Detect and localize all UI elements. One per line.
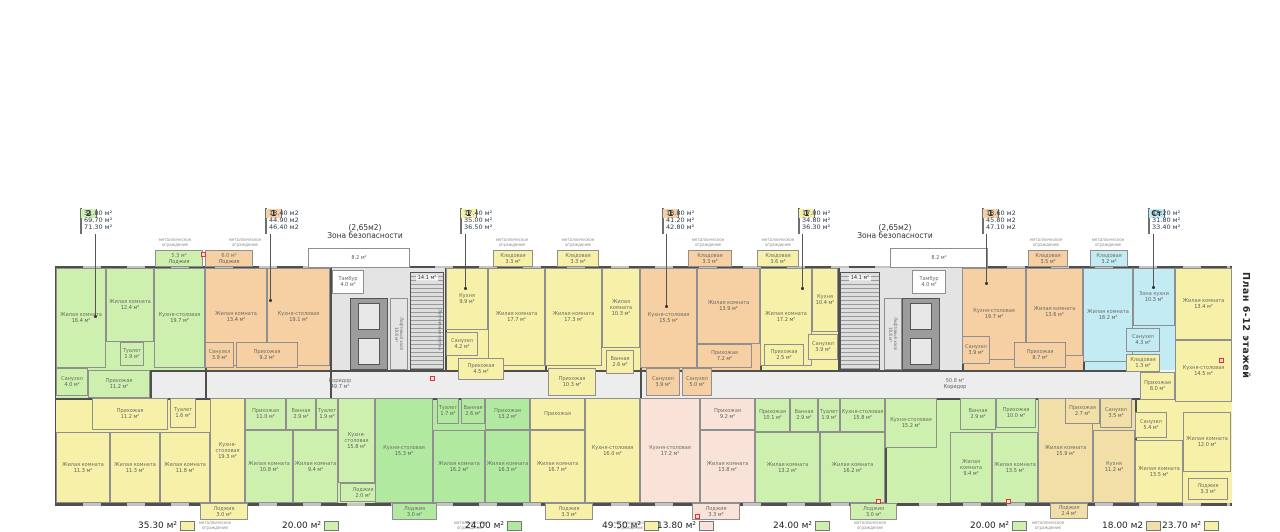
room: Жилая комната16.3 м²: [485, 430, 530, 503]
room: Лифтовый холл10.6 м²: [884, 298, 902, 370]
room: Санузел3.9 м²: [646, 368, 680, 396]
legend-connector-line: [270, 234, 271, 300]
room: Жилая комната13.8 м²: [700, 430, 755, 503]
floor-plan: 5.3 м²Лоджия6.0 м²ЛоджияКладовая3.3 м²Кл…: [0, 0, 1280, 532]
room-area: 17.3 м²: [564, 317, 583, 323]
room: Кладовая1.3 м²: [1126, 354, 1160, 372]
metal-fence-label: металлическоеограждение: [1030, 238, 1062, 247]
room-area: 4.0 м²: [921, 282, 936, 288]
room-area: 18.2 м²: [1099, 315, 1118, 321]
area-swatch: [815, 521, 830, 531]
room-area: 8.2 м²: [931, 255, 946, 261]
room-area: 8.0 м²: [1150, 386, 1165, 392]
legend-box: Ст18.20 м²31.80 м²33.40 м²: [1148, 208, 1150, 234]
room: Кладовая3.3 м²: [493, 250, 533, 267]
room-area: 3.0 м²: [216, 512, 231, 518]
legend-values: 18.20 м²31.80 м²33.40 м²: [1149, 209, 1183, 232]
bottom-area-value: 23.70 м²: [1162, 521, 1201, 531]
room: Жилая комната16.7 м²: [530, 430, 585, 503]
bottom-area-value: 18.00 м2: [1102, 521, 1143, 531]
room: Ванная2.6 м²: [461, 398, 485, 424]
room-area: 14.5 м²: [1194, 371, 1213, 377]
room-area: 17.7 м²: [507, 317, 526, 323]
room-area: 49.7 м²: [331, 384, 350, 390]
metal-fence-line: ограждение: [765, 242, 791, 247]
legend-box: 117.40 м²35.00 м²36.50 м²: [460, 208, 462, 234]
red-marker: [1219, 358, 1224, 363]
room-area: 16.7 м²: [548, 467, 567, 473]
room: Ванная2.6 м²: [606, 350, 634, 374]
red-marker: [430, 376, 435, 381]
room: Прихожая2.7 м²: [1065, 398, 1100, 424]
room: Лоджия3.0 м²: [850, 503, 897, 520]
legend-area: 42.80 м²: [666, 224, 694, 231]
room: Жилая комната16.2 м²: [433, 430, 485, 503]
room-area: 3.2 м²: [1101, 259, 1116, 265]
room: Жилая комната10.8 м²: [245, 430, 293, 503]
room: Санузел3.9 м²: [205, 342, 234, 368]
room: Лоджия3.3 м²: [545, 503, 593, 520]
room-area: 13.6 м²: [1045, 312, 1064, 318]
safety-zone-label: (2,65м2)Зона безопасности: [327, 224, 403, 240]
legend-box: 113.40 м244.90 м246.40 м2: [265, 208, 267, 234]
room-area: 19.7 м²: [985, 314, 1004, 320]
room-area: Лоджия: [218, 259, 239, 265]
room: Кладовая3.3 м²: [557, 250, 599, 267]
elevator-car: [358, 338, 380, 365]
room: Ванная2.9 м²: [286, 398, 316, 430]
room-name: Кухня-столовая: [211, 442, 244, 454]
room-area: 2.9 м²: [796, 415, 811, 421]
room: Жилая комната13.9 м²: [697, 268, 760, 344]
room-name: Жилая комната: [951, 459, 991, 471]
legend-values: 31.80 м²69.70 м²71.30 м²: [81, 209, 115, 232]
room: 5.3 м²Лоджия: [155, 250, 203, 267]
room: Жилая комната12.0 м²: [1183, 412, 1231, 472]
room: Прихожая2.5 м²: [764, 344, 804, 366]
room: Туалет1.9 м²: [818, 398, 840, 432]
room-area: 10.8 м²: [260, 467, 279, 473]
room: Жилая комната11.8 м²: [160, 432, 210, 503]
room: Ванная2.9 м²: [960, 398, 996, 430]
bottom-area-label: 20.00 м²: [282, 521, 339, 531]
legend-area: 36.50 м²: [464, 224, 492, 231]
room-area: 1.9 м²: [821, 415, 836, 421]
wall: [150, 370, 1140, 372]
room-area: 11.8 м²: [176, 468, 195, 474]
room-area: 11.2 м²: [1105, 467, 1124, 473]
metal-fence-label: металлическоеограждение: [762, 238, 794, 247]
metal-fence-line: ограждение: [232, 242, 258, 247]
room-area: 3.3 м²: [561, 512, 576, 518]
legend-values: 13.80 м²41.20 м²42.80 м²: [663, 209, 697, 232]
red-marker: [876, 499, 881, 504]
room: Коридор49.7 м²: [300, 372, 380, 396]
bottom-area-value: 24.00 м²: [465, 521, 504, 531]
legend-connector-line: [1153, 234, 1154, 287]
area-swatch: [1146, 521, 1161, 531]
metal-fence-label: металлическоеограждение: [199, 521, 231, 530]
room-area: 15.8 м²: [853, 415, 872, 421]
legend-area: 71.30 м²: [84, 224, 112, 231]
room: 8.2 м²: [308, 248, 410, 268]
room: Кухня-столовая15.8 м²: [840, 398, 885, 432]
bottom-area-value: 20.00 м²: [970, 521, 1009, 531]
room: Кладовая3.6 м²: [757, 250, 799, 267]
room: Жилая комната13.5 м²: [1135, 440, 1183, 503]
room-area: 9.4 м²: [963, 471, 978, 477]
room: Жилая комната17.7 м²: [488, 268, 545, 366]
room: Кухня10.4 м²: [812, 268, 838, 332]
room-area: 4.5 м²: [473, 369, 488, 375]
room: Ванная2.9 м²: [790, 398, 818, 432]
room: Кухня9.9 м²: [446, 268, 488, 330]
room-area: 2.6 м²: [612, 362, 627, 368]
elevator-car: [358, 303, 380, 330]
legend-box: 113.80 м²41.20 м²42.80 м²: [662, 208, 664, 234]
room: Прихожая: [530, 398, 585, 430]
room-area: 13.8 м²: [718, 467, 737, 473]
room-area: 4.0 м²: [64, 382, 79, 388]
room-area: 17.2 м²: [777, 317, 796, 323]
room-area: 8.2 м²: [351, 255, 366, 261]
room: Лоджия3.0 м²: [200, 503, 248, 520]
room-area: 3.9 м²: [212, 355, 227, 361]
room: Кухня-столовая15.8 м²: [338, 398, 375, 483]
bottom-area-label: 23.70 м²: [1162, 521, 1219, 531]
room: Прихожая10.1 м²: [755, 398, 790, 432]
elevator-shaft: [902, 298, 940, 370]
room-area: 3.0 м²: [407, 512, 422, 518]
area-swatch: [1204, 521, 1219, 531]
room: Санузел5.0 м²: [682, 368, 712, 396]
room-area: 3.3 м²: [1200, 489, 1215, 495]
room-area: 3.3 м²: [708, 512, 723, 518]
legend-connector-line: [666, 234, 667, 306]
room-area: 16.3 м²: [498, 467, 517, 473]
room: Жилая комната16.4 м²: [56, 268, 106, 368]
bottom-area-value: 35.30 м²: [138, 521, 177, 531]
room: Прихожая10.3 м²: [548, 368, 596, 396]
legend-values: 17.40 м²35.00 м²36.50 м²: [461, 209, 495, 232]
room: Кухня-столовая17.2 м²: [640, 398, 700, 503]
legend-area: 33.40 м²: [1152, 224, 1180, 231]
area-swatch: [324, 521, 339, 531]
metal-fence-line: ограждение: [499, 242, 525, 247]
room-area: Лоджия: [168, 259, 189, 265]
room-area: 10.0 м²: [1007, 413, 1026, 419]
bottom-area-value: 24.00 м²: [773, 521, 812, 531]
room-area: 14.1 м²: [849, 275, 872, 281]
room: Кухня-столовая19.7 м²: [154, 268, 205, 368]
apartment-zone: [150, 370, 1140, 398]
red-marker: [695, 514, 700, 519]
room-area: 3.5 м²: [1108, 413, 1123, 419]
elevator-car: [910, 338, 932, 365]
metal-fence-label: металлическоеограждение: [562, 238, 594, 247]
room-area: 13.4 м²: [1194, 304, 1213, 310]
room-area: 12.0 м²: [1198, 442, 1217, 448]
room-area: 15.5 м²: [659, 318, 678, 324]
room: 6.0 м²Лоджия: [205, 250, 253, 267]
room-area: 3.0 м²: [866, 512, 881, 518]
room-area: 10.3 м²: [563, 382, 582, 388]
room-area: 2.6 м²: [465, 411, 480, 417]
floor-plan-canvas: 5.3 м²Лоджия6.0 м²ЛоджияКладовая3.3 м²Кл…: [0, 0, 1280, 532]
bottom-area-label: 18.00 м2: [1102, 521, 1161, 531]
room-area: 16.2 м²: [843, 468, 862, 474]
room-area: 13.4 м²: [227, 317, 246, 323]
room-area: Коридор: [944, 384, 967, 390]
room: Кухня-столовая15.2 м²: [885, 398, 937, 448]
legend-box: 117.00 м²34.80 м²36.30 м²: [798, 208, 800, 234]
room-area: 13.2 м²: [498, 414, 517, 420]
room: Кухня11.2 м²: [1093, 430, 1135, 503]
metal-fence-label: металлическоеограждение: [1032, 521, 1064, 530]
room: Санузел4.3 м²: [1126, 328, 1160, 352]
room: Кухня-столовая14.5 м²: [1175, 340, 1232, 402]
room-area: 1.9 м²: [319, 414, 334, 420]
room-name: Прихожая: [544, 411, 571, 417]
room-area: 2.5 м²: [776, 355, 791, 361]
room: Жилая комната13.4 м²: [1175, 268, 1232, 340]
room: Жилая комната9.4 м²: [293, 430, 338, 503]
room-area: 11.3 м²: [74, 468, 93, 474]
room: Жилая комната16.2 м²: [820, 432, 885, 503]
room-area: 9.4 м²: [308, 467, 323, 473]
metal-fence-line: ограждение: [1095, 242, 1121, 247]
room: Жилая комната10.3 м²: [602, 268, 640, 348]
room-name: Лестничная клетка: [438, 309, 443, 350]
safety-zone-text: Зона безопасности: [857, 231, 933, 240]
bottom-area-value: 13.80 м²: [657, 521, 696, 531]
legend-area: 47.10 м2: [986, 224, 1016, 231]
room-area: 3.6 м²: [770, 259, 785, 265]
red-marker: [201, 252, 206, 257]
area-swatch: [180, 521, 195, 531]
room: Прихожая11.0 м²: [245, 398, 286, 430]
safety-zone-label: (2,65м2)Зона безопасности: [857, 224, 933, 240]
bottom-area-value: 20.00 м²: [282, 521, 321, 531]
room: Кухня-столовая16.0 м²: [585, 398, 640, 503]
room-area: 11.2 м²: [121, 414, 140, 420]
room: 8.2 м²: [890, 248, 988, 268]
room-area: 2.9 м²: [293, 414, 308, 420]
room-area: 3.3 м²: [702, 259, 717, 265]
room-area: 16.2 м²: [450, 467, 469, 473]
room: Санузел4.0 м²: [56, 368, 88, 396]
stairwell: 14.1 м²: [840, 272, 880, 370]
room-area: 10.1 м²: [763, 415, 782, 421]
room: Туалет1.9 м²: [120, 342, 144, 366]
room: Лифтовый холл10.6 м²: [390, 298, 408, 370]
room-area: 2.0 м²: [355, 493, 370, 499]
room: Прихожая7.2 м²: [697, 344, 752, 368]
room: Прихожая9.2 м²: [700, 398, 755, 430]
room: Прихожая8.0 м²: [1140, 372, 1175, 400]
elevator-car: [910, 303, 932, 330]
room: Прихожая8.7 м²: [1014, 342, 1066, 368]
room-area: 11.3 м²: [126, 468, 145, 474]
room: Прихожая9.2 м²: [236, 342, 298, 368]
room-area: 19.1 м²: [289, 317, 308, 323]
room-area: 1.9 м²: [124, 354, 139, 360]
bottom-area-label: 49.50 м²: [602, 521, 659, 531]
metal-fence-line: ограждение: [695, 242, 721, 247]
room-area: 2.4 м²: [1061, 511, 1076, 517]
metal-fence-label: металлическоеограждение: [1092, 238, 1124, 247]
room: Санузел5.4 м²: [1135, 412, 1167, 438]
room: Тамбур4.0 м²: [332, 270, 364, 294]
room: Кухня-столовая19.3 м²: [210, 398, 245, 503]
room-area: 9.2 м²: [259, 355, 274, 361]
legend-values: 13.40 м244.90 м246.40 м2: [266, 209, 302, 232]
room-area: 17.2 м²: [661, 451, 680, 457]
bottom-area-label: 24.00 м²: [465, 521, 522, 531]
room: Санузел3.9 м²: [808, 334, 838, 360]
room: Санузел4.2 м²: [446, 332, 478, 356]
room-area: 5.0 м²: [689, 382, 704, 388]
room-area: 10.3 м²: [1145, 297, 1164, 303]
room-area: 13.5 м²: [1006, 468, 1025, 474]
room-area: 15.8 м²: [347, 444, 366, 450]
room-area: 13.9 м²: [719, 306, 738, 312]
legend-connector-line: [986, 234, 987, 283]
room: Прихожая10.0 м²: [996, 398, 1036, 428]
room: Жилая комната12.4 м²: [106, 268, 154, 342]
room: Санузел3.5 м²: [1100, 398, 1132, 428]
room: Лоджия2.4 м²: [1050, 503, 1088, 519]
room: Туалет1.9 м²: [316, 398, 338, 430]
room-area: 10.4 м²: [816, 300, 835, 306]
plan-title: План 6-12 этажей: [1240, 272, 1251, 432]
room-area: 1.7 м²: [440, 411, 455, 417]
room-area: 9.9 м²: [459, 299, 474, 305]
wall: [150, 370, 152, 398]
room-area: 19.7 м²: [170, 318, 189, 324]
safety-zone-text: Зона безопасности: [327, 231, 403, 240]
room: Санузел3.9 м²: [962, 336, 990, 364]
room-area: 4.0 м²: [340, 282, 355, 288]
room: Туалет1.7 м²: [437, 398, 459, 424]
elevator-shaft: [350, 298, 388, 370]
bottom-area-label: 20.00 м²: [970, 521, 1027, 531]
legend-values: 17.00 м²34.80 м²36.30 м²: [799, 209, 833, 232]
legend-area: 46.40 м2: [269, 224, 299, 231]
room: Зона кухни10.3 м²: [1133, 268, 1175, 326]
room-area: 3.5 м²: [1040, 259, 1055, 265]
legend-box: 231.80 м²69.70 м²71.30 м²: [80, 208, 82, 234]
metal-fence-line: ограждение: [857, 525, 883, 530]
room-area: 7.2 м²: [717, 356, 732, 362]
room-area: 9.2 м²: [720, 414, 735, 420]
room-name: Кухня-столовая: [339, 432, 374, 444]
room: Жилая комната11.3 м²: [56, 432, 110, 503]
room: Прихожая11.2 м²: [92, 398, 168, 430]
room-area: 16.0 м²: [603, 451, 622, 457]
room-name: Лифтовый холл: [893, 317, 898, 350]
room: Кладовая3.3 м²: [688, 250, 732, 267]
room: Лоджия3.3 м²: [1188, 478, 1228, 500]
room-area: 13.2 м²: [778, 468, 797, 474]
room: Жилая комната13.5 м²: [992, 432, 1038, 503]
room: Кухня-столовая15.5 м²: [640, 268, 697, 368]
room-area: 16.4 м²: [72, 318, 91, 324]
bottom-area-label: 13.80 м²: [657, 521, 714, 531]
metal-fence-label: металлическоеограждение: [692, 238, 724, 247]
room-area: 2.9 м²: [970, 414, 985, 420]
legend-connector-line: [95, 234, 96, 316]
room: Туалет1.6 м²: [170, 398, 196, 428]
room-area: 10.3 м²: [612, 311, 631, 317]
metal-fence-line: ограждение: [202, 525, 228, 530]
room-area: 11.2 м²: [110, 384, 129, 390]
room-area: 3.9 м²: [815, 347, 830, 353]
room-area: 4.3 м²: [1135, 340, 1150, 346]
room-area: 14.1 м²: [416, 275, 439, 281]
room-area: 4.2 м²: [454, 344, 469, 350]
room-area: 3.9 м²: [968, 350, 983, 356]
room-name: Лифтовый холл: [399, 317, 404, 350]
metal-fence-label: металлическоеограждение: [854, 521, 886, 530]
room: Кухня-столовая15.3 м²: [375, 398, 433, 503]
room: Лестничная клетка: [436, 298, 444, 360]
room-area: 8.7 м²: [1032, 355, 1047, 361]
room: 50.8 м²Коридор: [920, 372, 990, 396]
area-swatch: [699, 521, 714, 531]
room-area: 5.4 м²: [1143, 425, 1158, 431]
room-area: 15.9 м²: [1056, 451, 1075, 457]
room-area: 1.3 м²: [1135, 363, 1150, 369]
bottom-area-label: 24.00 м²: [773, 521, 830, 531]
room: Тамбур4.0 м²: [912, 270, 946, 294]
metal-fence-line: ограждение: [1035, 525, 1061, 530]
room-area: 3.3 м²: [505, 259, 520, 265]
bottom-area-value: 49.50 м²: [602, 521, 641, 531]
room: Жилая комната13.2 м²: [755, 432, 820, 503]
room-area: 3.9 м²: [655, 382, 670, 388]
metal-fence-label: металлическоеограждение: [496, 238, 528, 247]
room: Кладовая3.5 м²: [1028, 250, 1068, 267]
area-swatch: [507, 521, 522, 531]
room: Прихожая11.2 м²: [88, 370, 150, 398]
room: Прихожая13.2 м²: [485, 398, 530, 430]
room-area: 10.6 м²: [394, 327, 399, 342]
room: Жилая комната17.3 м²: [545, 268, 602, 366]
room: Прихожая4.5 м²: [458, 358, 504, 380]
metal-fence-line: ограждение: [565, 242, 591, 247]
metal-fence-line: ограждение: [162, 242, 188, 247]
room-area: 10.6 м²: [888, 327, 893, 342]
legend-box: 113.60 м245.80 м247.10 м2: [982, 208, 984, 234]
room: Лоджия3.0 м²: [392, 503, 437, 520]
legend-connector-line: [802, 234, 803, 288]
room-area: 13.5 м²: [1150, 472, 1169, 478]
legend-connector-line: [465, 234, 466, 288]
room: Кладовая3.2 м²: [1090, 250, 1128, 267]
metal-fence-label: металлическоеограждение: [159, 238, 191, 247]
bottom-area-label: 35.30 м²: [138, 521, 195, 531]
room-name: Жилая комната: [603, 299, 639, 311]
room-area: 1.6 м²: [175, 413, 190, 419]
room: Жилая комната11.3 м²: [110, 432, 160, 503]
room-area: 2.7 м²: [1075, 411, 1090, 417]
legend-values: 13.60 м245.80 м247.10 м2: [983, 209, 1019, 232]
metal-fence-line: ограждение: [1033, 242, 1059, 247]
red-marker: [1006, 499, 1011, 504]
room-area: 12.4 м²: [121, 305, 140, 311]
room-area: 3.3 м²: [570, 259, 585, 265]
